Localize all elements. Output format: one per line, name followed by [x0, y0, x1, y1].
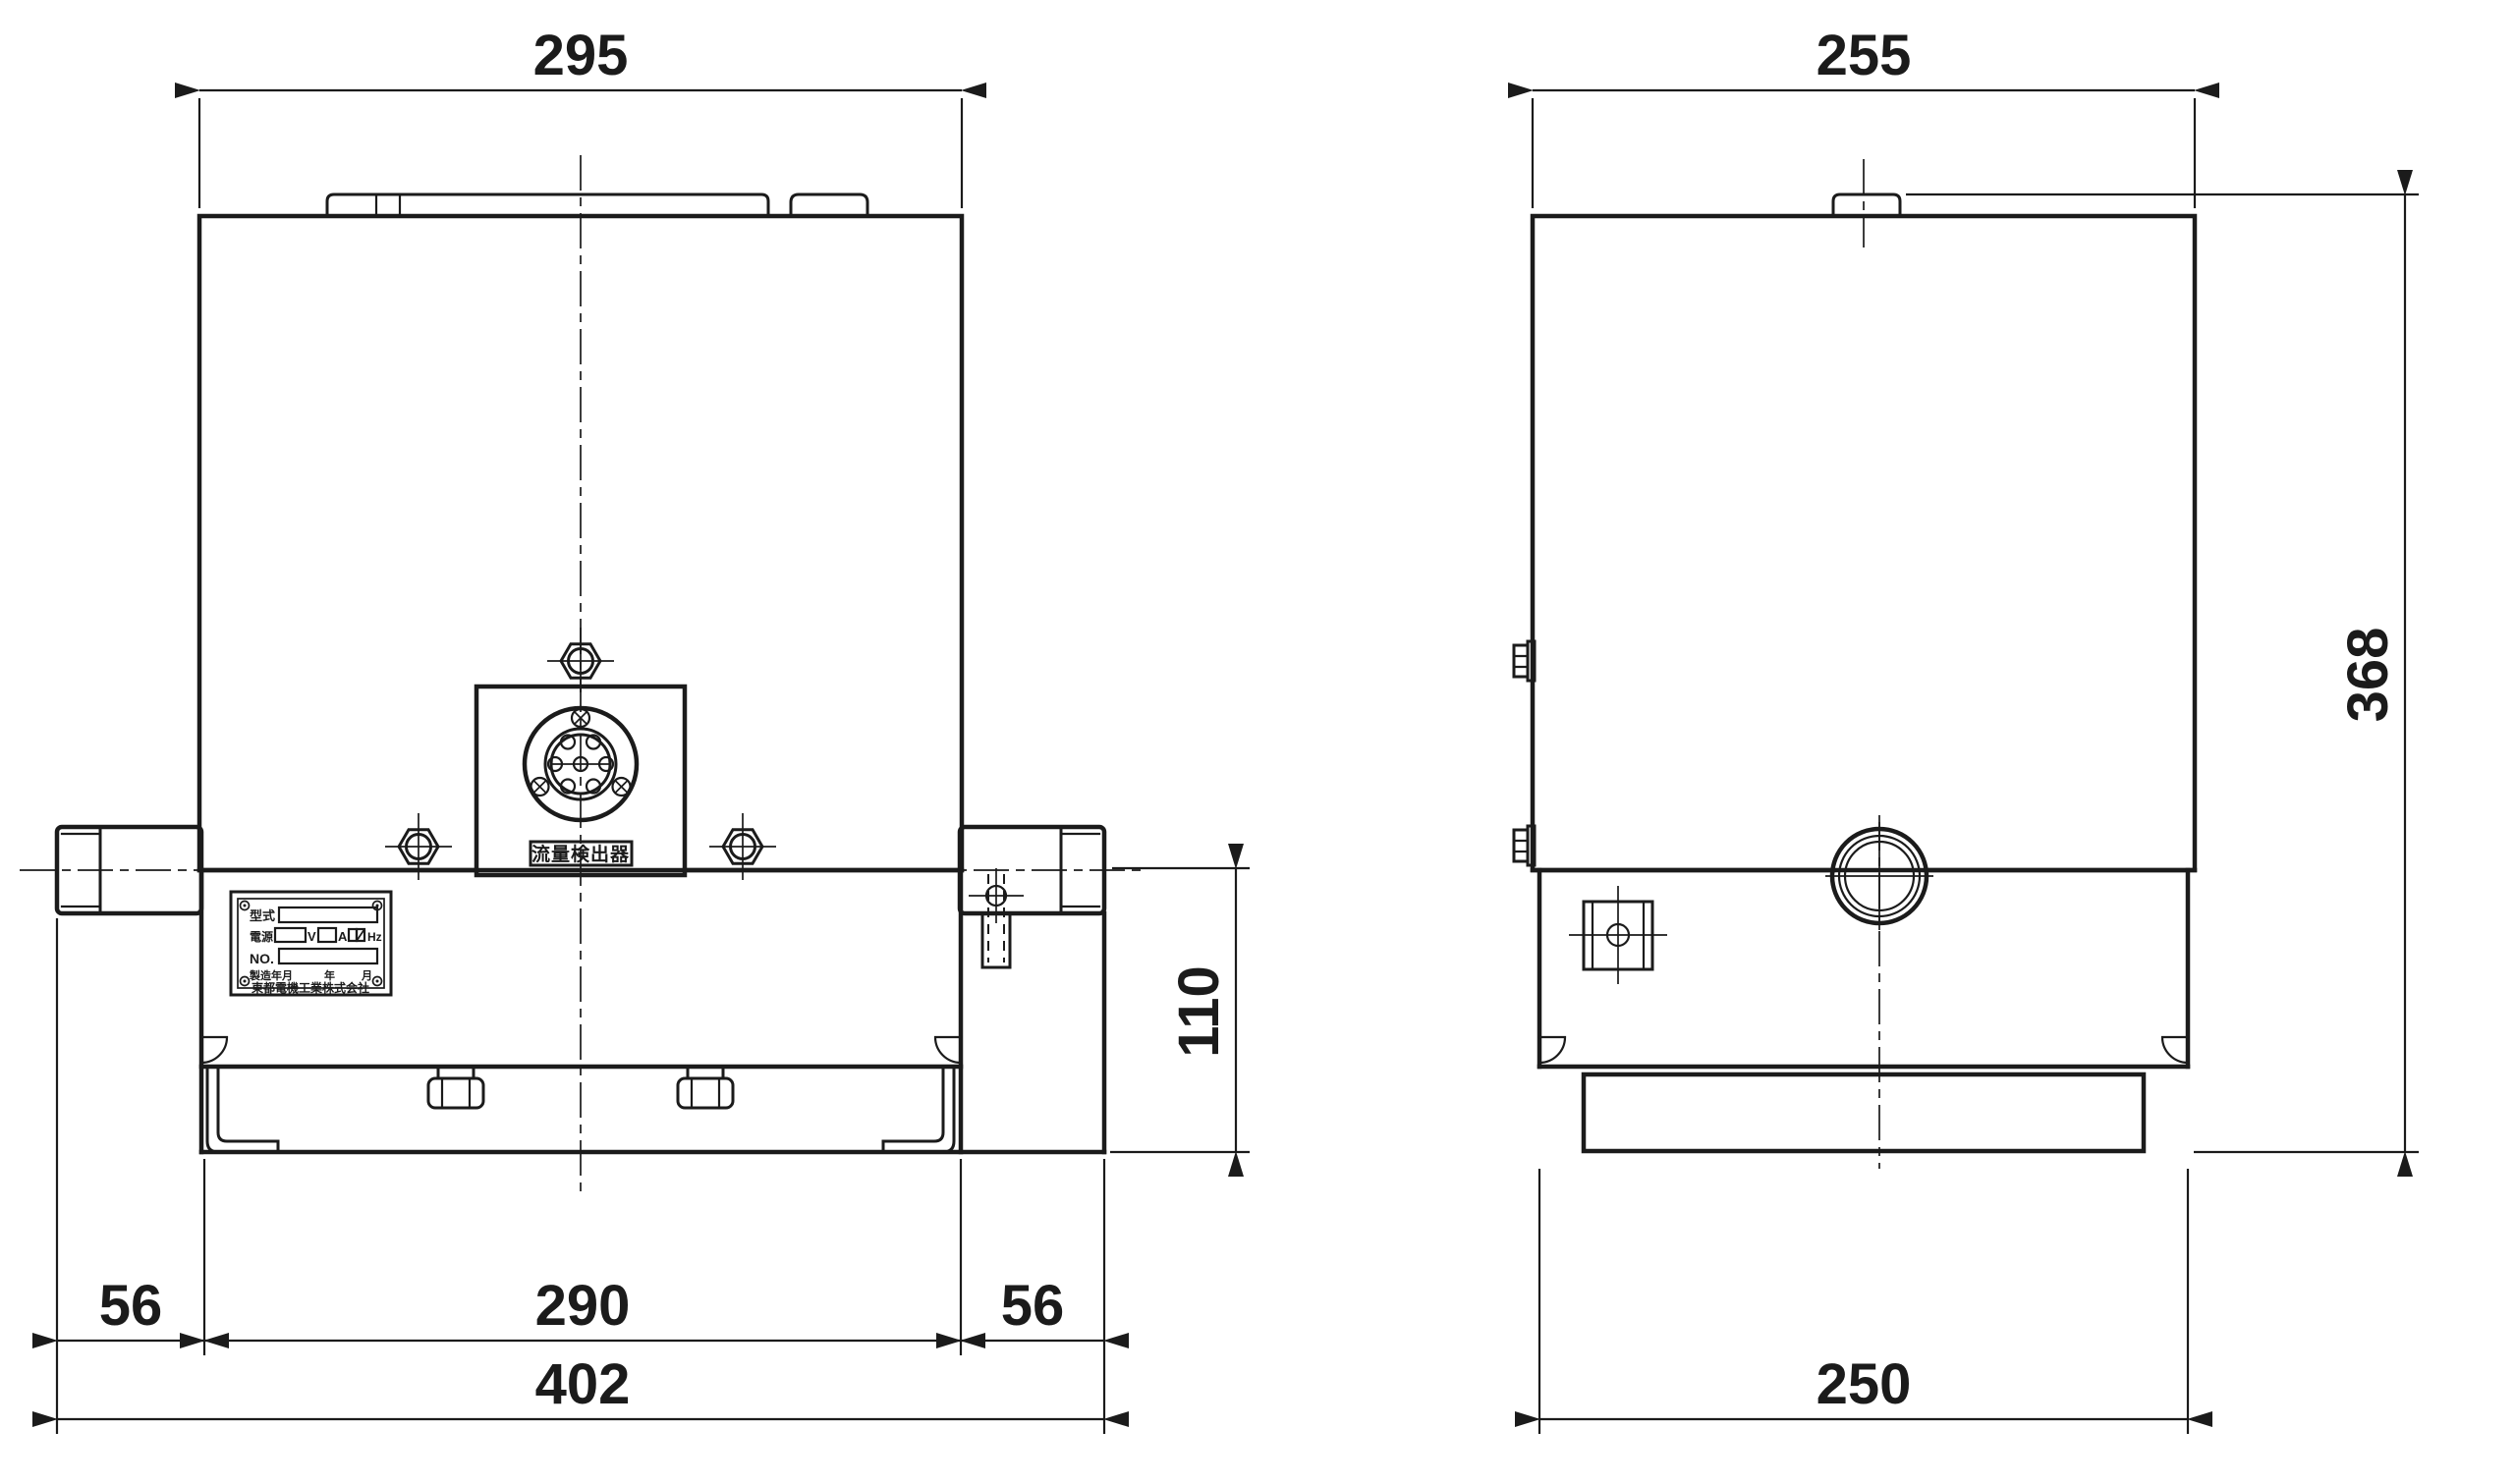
side-mounting-pad [1569, 886, 1667, 984]
nameplate-volt-unit: V [307, 929, 316, 944]
nameplate-year-label: 年 [324, 968, 335, 982]
dim-text-250: 250 [1816, 1352, 1912, 1416]
dim-text-56-right: 56 [1001, 1274, 1065, 1338]
nameplate-date-label: 製造年月 [249, 968, 293, 982]
engineering-drawing: 流量検出器 型式 電源 V A [0, 0, 2515, 1484]
nameplate-model-label: 型式 [250, 908, 275, 923]
nameplate-amp-unit: A [338, 929, 348, 944]
sheet-background [0, 0, 2515, 1484]
dim-text-110: 110 [1167, 965, 1231, 1058]
dim-text-56-left: 56 [99, 1274, 163, 1338]
dim-text-368: 368 [2336, 628, 2400, 723]
nameplate-power-label: 電源 [250, 929, 273, 944]
nameplate-serial-label: NO. [250, 951, 274, 966]
dim-text-402: 402 [535, 1352, 631, 1416]
dim-text-290: 290 [535, 1274, 631, 1338]
dim-text-295: 295 [533, 24, 629, 87]
nameplate-company: 東都電機工業株式会社 [251, 980, 369, 995]
nameplate-freq-unit: Hz [367, 930, 382, 944]
drawing-sheet: 流量検出器 型式 電源 V A [0, 0, 2515, 1484]
dim-text-255: 255 [1816, 24, 1912, 87]
